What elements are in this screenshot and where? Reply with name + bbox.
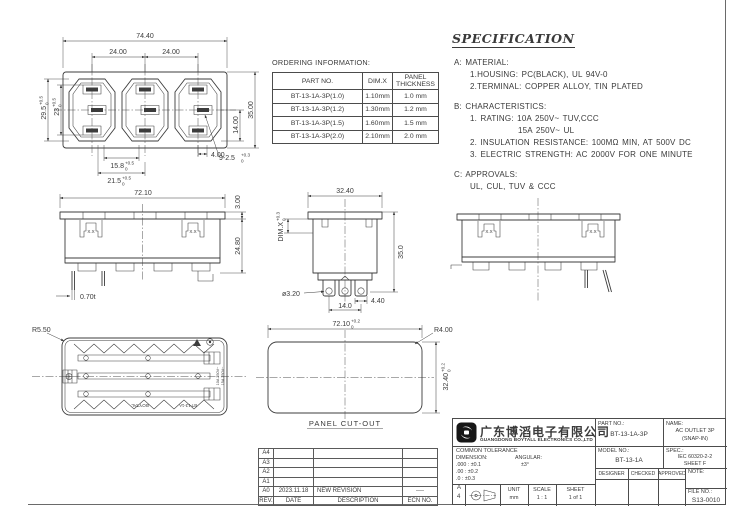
svg-text:+0.3: +0.3 [276, 211, 281, 221]
dim-end-pitch: 14.0 [338, 303, 352, 310]
tolerance-ang-label: ANGULAR: [515, 455, 542, 461]
revision-table: A4 A3 A2 A1 A02023.11.18NEW REVISION----… [258, 448, 438, 506]
ordering-row: BT-13-1A-3P(1.5)1.60mm1.5 mm [273, 117, 439, 131]
ordering-header-panel: PANELTHICKNESS [393, 73, 439, 90]
svg-text:0: 0 [351, 325, 354, 330]
dim-end-pin: 4.40 [371, 298, 385, 305]
rear-view-dimensions: R5.50 [32, 327, 64, 341]
revision-row: A1 [259, 477, 438, 487]
spec-line: 15A 250V~ UL [518, 125, 736, 136]
note-label: NOTE: [688, 469, 704, 475]
ordering-title: ORDERING INFORMATION: [272, 58, 444, 67]
svg-text:+0.5: +0.5 [52, 97, 57, 107]
approved-header: APPROVED [658, 471, 685, 477]
designer-header: DESIGNER [595, 471, 628, 477]
svg-text:29.5: 29.5 [41, 106, 48, 120]
company-name-en: GUANGDONG BOYTALL ELECTRONICS CO.,LTD [480, 437, 593, 442]
svg-text:+0.2: +0.2 [441, 362, 446, 372]
svg-text:+0.5: +0.5 [125, 161, 135, 166]
projection-symbol [469, 487, 497, 504]
svg-text:0: 0 [45, 102, 50, 105]
svg-text:35.0: 35.0 [398, 245, 405, 259]
file-no-value: S13-0010 [685, 497, 727, 504]
rear-model-marking: BT-13-1A [179, 403, 197, 408]
svg-text:+0.2: +0.2 [351, 319, 361, 324]
name-value-line1: AC OUTLET 3P [663, 428, 727, 434]
svg-text:0: 0 [282, 218, 287, 221]
svg-text:+0.3: +0.3 [241, 153, 251, 158]
dim-end-width: 32.40 [336, 188, 354, 195]
ordering-row: BT-13-1A-3P(1.2)1.30mm1.2 mm [273, 103, 439, 117]
dim-cutout-height: 32.40 +0.2 0 [441, 362, 452, 390]
tolerance-row1: .000 : ±0.1 [456, 462, 481, 468]
company-logo [456, 422, 477, 443]
paper-size-4: 4 [457, 494, 460, 500]
rear-view-geometry: BOYTAL BT-13-1A 15A 250V~ 10A 250V~ [32, 338, 246, 415]
caution-triangle-symbol [193, 339, 201, 346]
tolerance-row3: .0 : ±0.3 [456, 476, 475, 482]
dim-end-hole: ø3.20 [282, 291, 300, 298]
end-view-drawing: 32.40 DIM.X +0.3 0 35.0 ø3.20 4.40 14.0 [270, 183, 438, 315]
svg-text:23: 23 [54, 108, 61, 116]
part-no-value: BT-13-1A-3P [595, 431, 663, 438]
part-no-label: PART NO.: [598, 421, 624, 427]
spec-line: C: APPROVALS: [454, 169, 736, 180]
dim-front-pitch1: 24.00 [109, 49, 127, 56]
dim-cutout-radius: R4.00 [434, 327, 453, 334]
tolerance-row2: .00 : ±0.2 [456, 469, 478, 475]
dim-end-dimx: DIM.X +0.3 0 [276, 211, 287, 241]
file-no-label: FILE NO.: [688, 489, 712, 495]
panel-cutout-drawing: 72.10 +0.2 0 R4.00 32.40 +0.2 0 PANEL CU… [256, 316, 462, 431]
svg-text:0: 0 [241, 159, 244, 164]
revision-footer: REV.DATEDESCRIPTIONECN NO. [259, 496, 438, 506]
spec-line: 1.HOUSING: PC(BLACK), UL 94V-0 [470, 69, 736, 80]
dim-front-r1: 14.00 [233, 116, 240, 134]
end-view-geometry [308, 199, 382, 307]
side-view-dimensions: 72.10 3.00 24.80 0.70t [56, 190, 246, 301]
svg-text:9-2.5: 9-2.5 [219, 155, 235, 162]
side-view-drawing: X.X X.X 72.10 3.00 24.80 [38, 186, 260, 312]
drawing-sheet: 74.40 24.00 24.00 29.5 +0.5 0 23 +0.5 0 … [0, 0, 738, 512]
dim-side-height: 24.80 [235, 237, 242, 255]
spec-value-line1: IEC 60320-2-2 [663, 454, 727, 460]
dim-front-holes: 9-2.5 +0.3 0 [219, 153, 251, 164]
dim-front-r2: 35.00 [248, 101, 255, 119]
svg-text:0: 0 [58, 104, 63, 107]
dim-side-width: 72.10 [134, 190, 152, 197]
dim-front-width: 74.40 [136, 33, 154, 40]
rear-brand-marking: BOYTAL [131, 403, 149, 408]
clip-dim-label: X.X [485, 229, 492, 234]
spec-line: B: CHARACTERISTICS: [454, 101, 736, 112]
ordering-header-part: PART NO. [273, 73, 363, 90]
spec-line: 2. INSULATION RESISTANCE: 100MΩ MIN, AT … [470, 137, 736, 148]
rear-rating-marking: 15A 250V~ [221, 366, 225, 385]
name-label: NAME: [666, 421, 683, 427]
revision-row: A02023.11.18NEW REVISION---- [259, 487, 438, 497]
sheet-cell: SHEET1 of 1 [556, 486, 595, 502]
model-no-label: MODEL NO.: [598, 448, 630, 454]
tolerance-angular-value: ±3° [521, 462, 529, 468]
dim-cutout-width: 72.10 +0.2 0 [332, 319, 360, 330]
paper-size-a: A [457, 485, 461, 491]
side-view2-geometry: X.X X.X [451, 198, 620, 301]
svg-text:32.40: 32.40 [443, 373, 450, 391]
ordering-row: BT-13-1A-3P(2.0)2.10mm2.0 mm [273, 130, 439, 144]
dim-end-height: 35.0 [398, 245, 405, 259]
clip-dim-label: X.X [589, 229, 596, 234]
revision-row: A2 [259, 468, 438, 478]
spec-line: 1. RATING: 10A 250V~ TUV,CCC [470, 113, 736, 124]
spec-line: 2.TERMINAL: COPPER ALLOY, TIN PLATED [470, 81, 736, 92]
specification-section: SPECIFICATION A: MATERIAL: 1.HOUSING: PC… [448, 30, 736, 192]
dim-front-pitch2: 24.00 [162, 49, 180, 56]
svg-text:14.00: 14.00 [233, 116, 240, 134]
ordering-header-dimx: DIM.X [363, 73, 393, 90]
svg-text:0: 0 [125, 167, 128, 172]
front-view-geometry [54, 64, 236, 156]
svg-text:72.10: 72.10 [332, 321, 350, 328]
svg-text:0: 0 [447, 369, 452, 372]
ordering-table: PART NO. DIM.X PANELTHICKNESS BT-13-1A-3… [272, 72, 439, 144]
clip-dim-label: X.X [87, 229, 94, 234]
rear-rating-marking: 10A 250V~ [216, 366, 220, 385]
clip-dim-label: X.X [189, 229, 196, 234]
svg-text:+0.5: +0.5 [39, 95, 44, 105]
dim-side-pin-thickness: 0.70t [80, 294, 96, 301]
rear-view-drawing: BOYTAL BT-13-1A 15A 250V~ 10A 250V~ R5.5… [28, 316, 263, 426]
spec-line: 3. ELECTRIC STRENGTH: AC 2000V FOR ONE M… [470, 149, 736, 160]
tolerance-title: COMMON TOLERANCE [456, 448, 518, 454]
end-view-dimensions: 32.40 DIM.X +0.3 0 35.0 ø3.20 4.40 14.0 [276, 188, 406, 313]
dim-front-b2: 21.5 +0.5 0 [107, 176, 131, 187]
svg-text:3.00: 3.00 [235, 195, 242, 209]
dim-front-b1: 15.8 +0.5 0 [110, 161, 134, 172]
cutout-geometry [256, 330, 434, 425]
revision-row: A3 [259, 458, 438, 468]
svg-text:+0.5: +0.5 [122, 176, 132, 181]
scale-cell: SCALE1 : 1 [528, 486, 556, 502]
front-view-drawing: 74.40 24.00 24.00 29.5 +0.5 0 23 +0.5 0 … [38, 28, 278, 190]
svg-text:24.80: 24.80 [235, 237, 242, 255]
svg-text:15.8: 15.8 [110, 163, 124, 170]
specification-title: SPECIFICATION [452, 31, 575, 48]
ordering-row: BT-13-1A-3P(1.0)1.10mm1.0 mm [273, 90, 439, 104]
side-view2-drawing: X.X X.X [443, 186, 633, 308]
cutout-label: PANEL CUT-OUT [309, 419, 381, 428]
unit-cell: UNITmm [500, 486, 528, 502]
model-no-value: BT-13-1A [595, 457, 663, 464]
side-view-geometry: X.X X.X [60, 204, 225, 290]
name-value-line2: (SNAP-IN) [663, 436, 727, 442]
svg-text:21.5: 21.5 [107, 178, 121, 185]
svg-text:35.00: 35.00 [248, 101, 255, 119]
spec-line: A: MATERIAL: [454, 57, 736, 68]
revision-row: A4 [259, 449, 438, 459]
cutout-dimensions: 72.10 +0.2 0 R4.00 32.40 +0.2 0 PANEL CU… [268, 319, 453, 429]
title-block: 广东博滔电子有限公司 GUANGDONG BOYTALL ELECTRONICS… [452, 418, 726, 505]
ordering-information: ORDERING INFORMATION: PART NO. DIM.X PAN… [272, 58, 444, 144]
checked-header: CHECKED [628, 471, 658, 477]
svg-text:DIM.X: DIM.X [278, 222, 285, 242]
dim-rear-radius: R5.50 [32, 327, 51, 334]
tolerance-dim-label: DIMENSION: [456, 455, 488, 461]
spec-value-line2: SHEET F [663, 461, 727, 467]
dim-side-flange: 3.00 [235, 195, 242, 209]
